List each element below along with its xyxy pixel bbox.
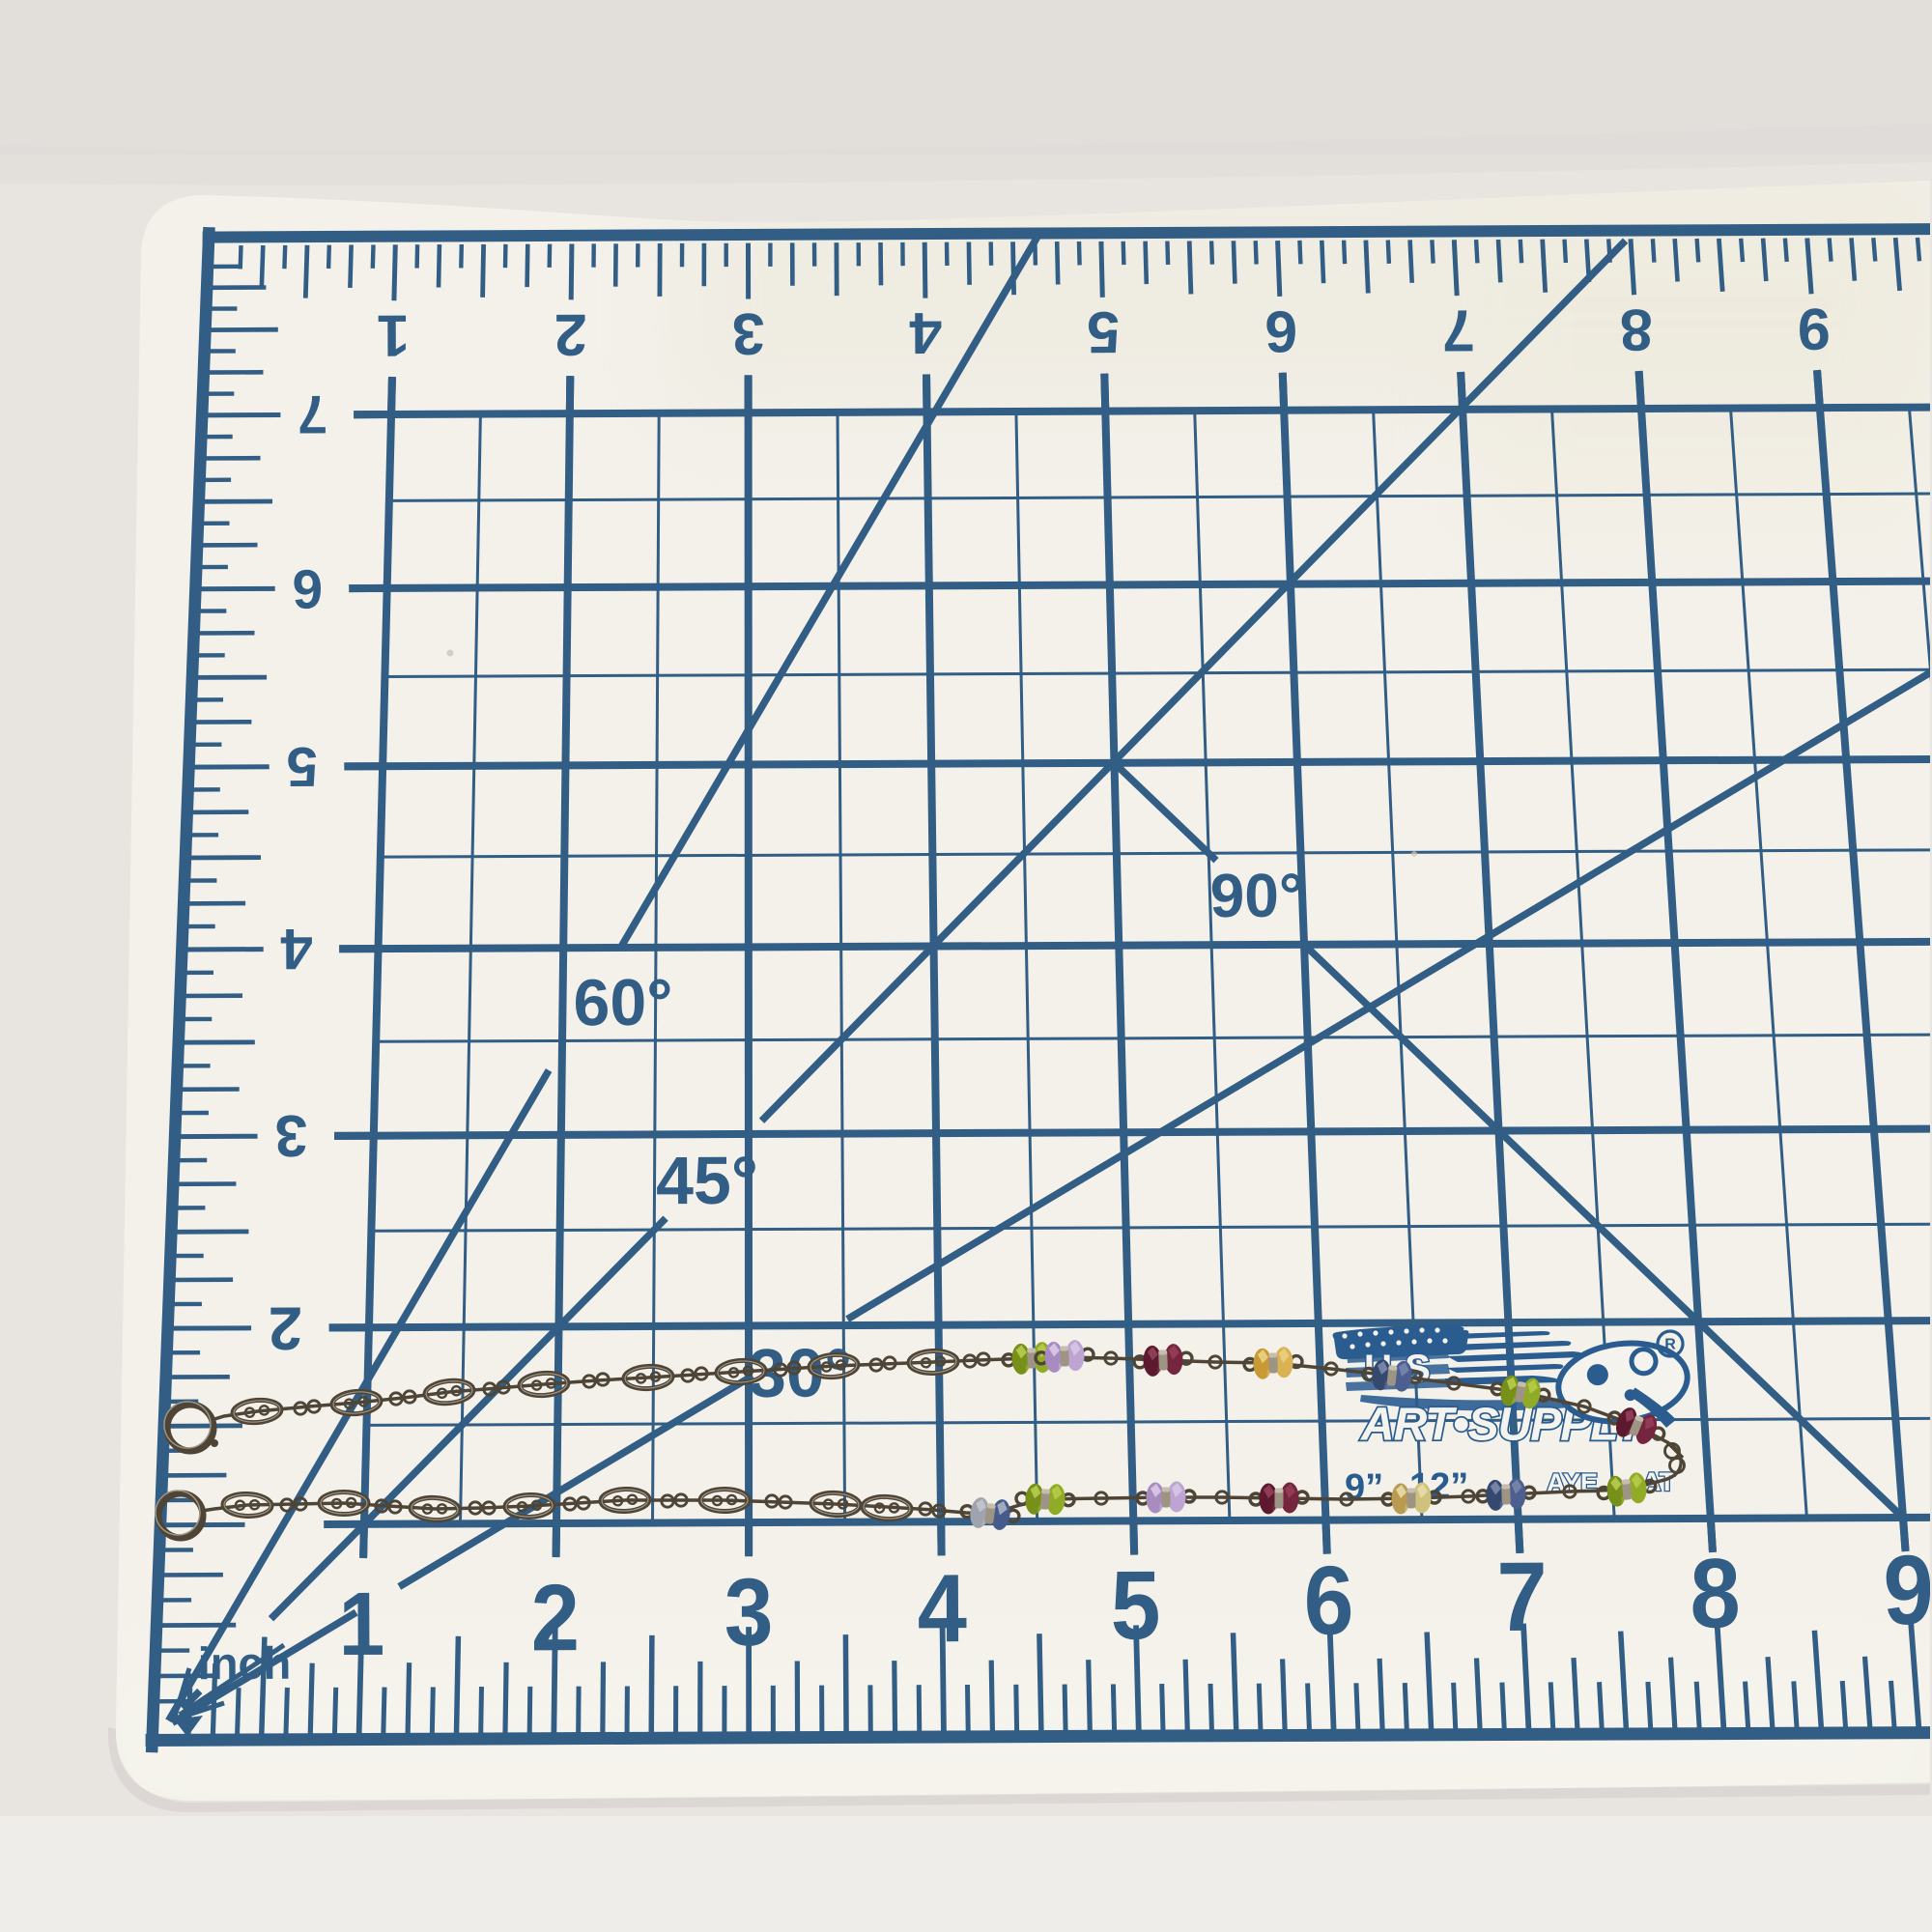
svg-text:R: R (1664, 1337, 1676, 1353)
